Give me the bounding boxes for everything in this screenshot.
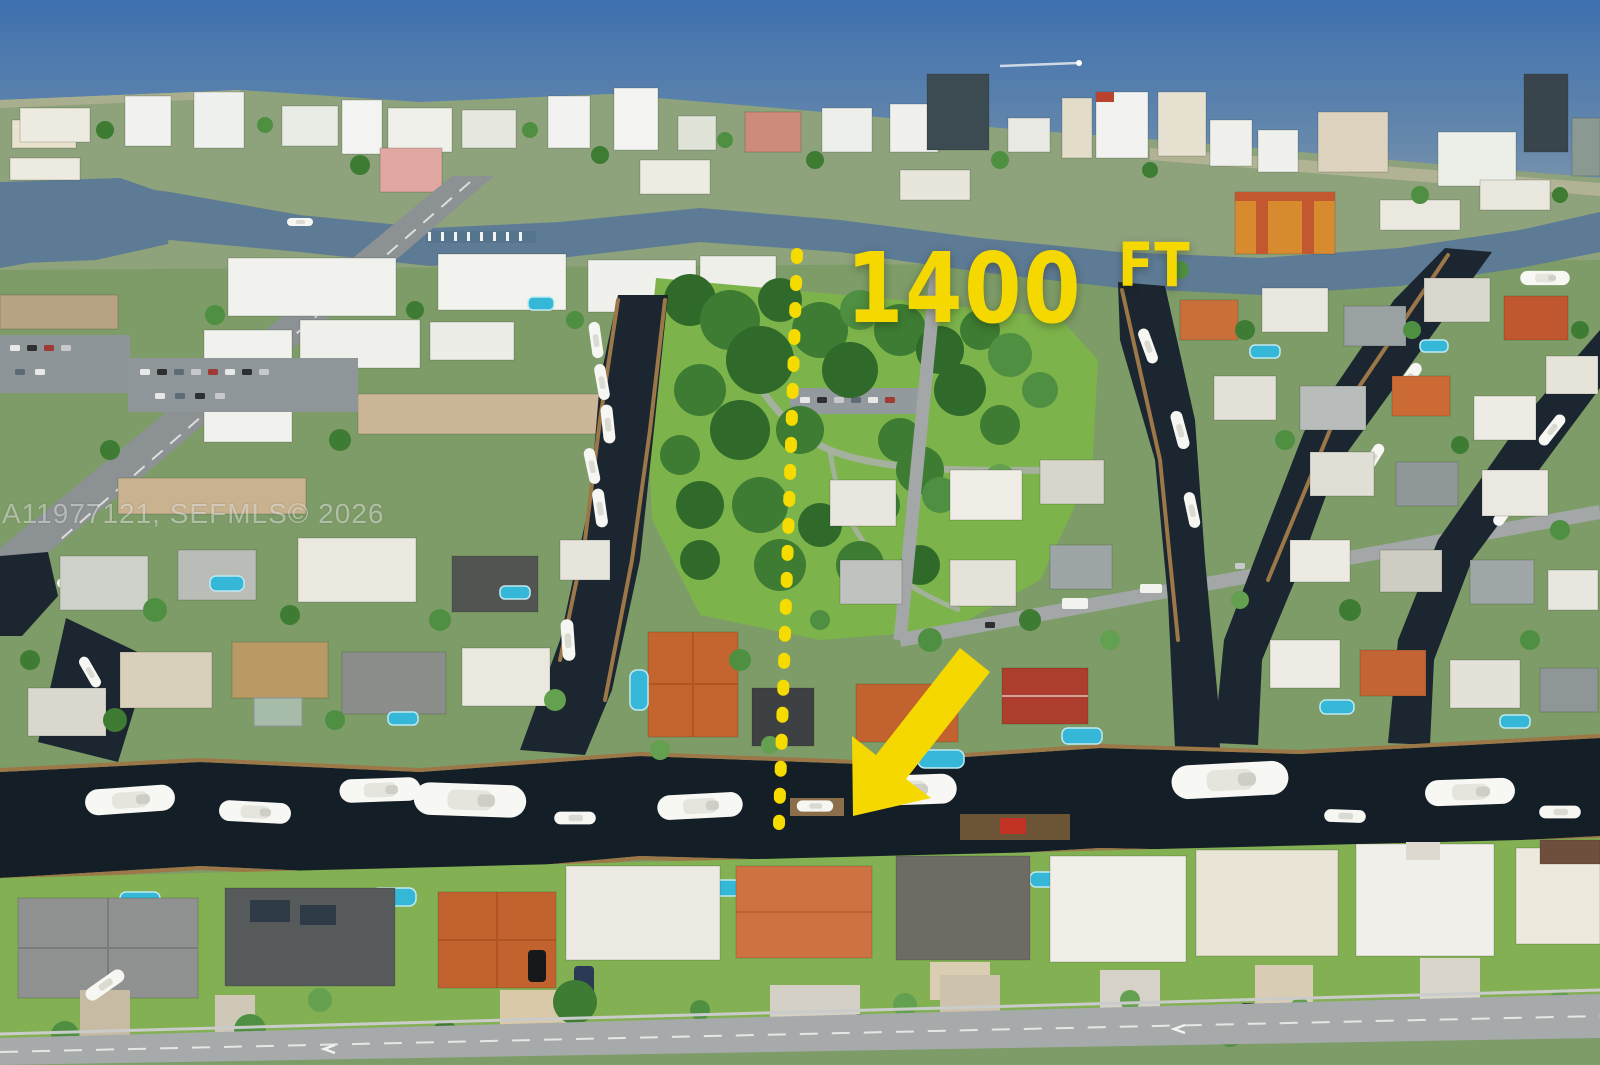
townhome-strip	[358, 394, 620, 434]
dark-glass-tower	[927, 74, 989, 150]
parking-lot	[128, 358, 358, 412]
strip-mall	[0, 295, 118, 329]
crane	[1000, 818, 1026, 834]
yacht	[1520, 271, 1570, 285]
pool	[528, 297, 554, 310]
truck	[1062, 598, 1088, 609]
aerial-photo: A11977121, SEFMLS© 2026 1400 FT	[0, 0, 1600, 1065]
pool-enclosure	[254, 698, 302, 726]
orange-condo	[1235, 192, 1335, 254]
solar-panels	[250, 900, 290, 922]
watermark: A11977121, SEFMLS© 2026	[2, 500, 384, 528]
distance-unit-label: FT	[1118, 235, 1190, 296]
pink-building	[380, 148, 442, 192]
aerial-scene	[0, 0, 1600, 1065]
distance-label: 1400	[846, 240, 1082, 337]
